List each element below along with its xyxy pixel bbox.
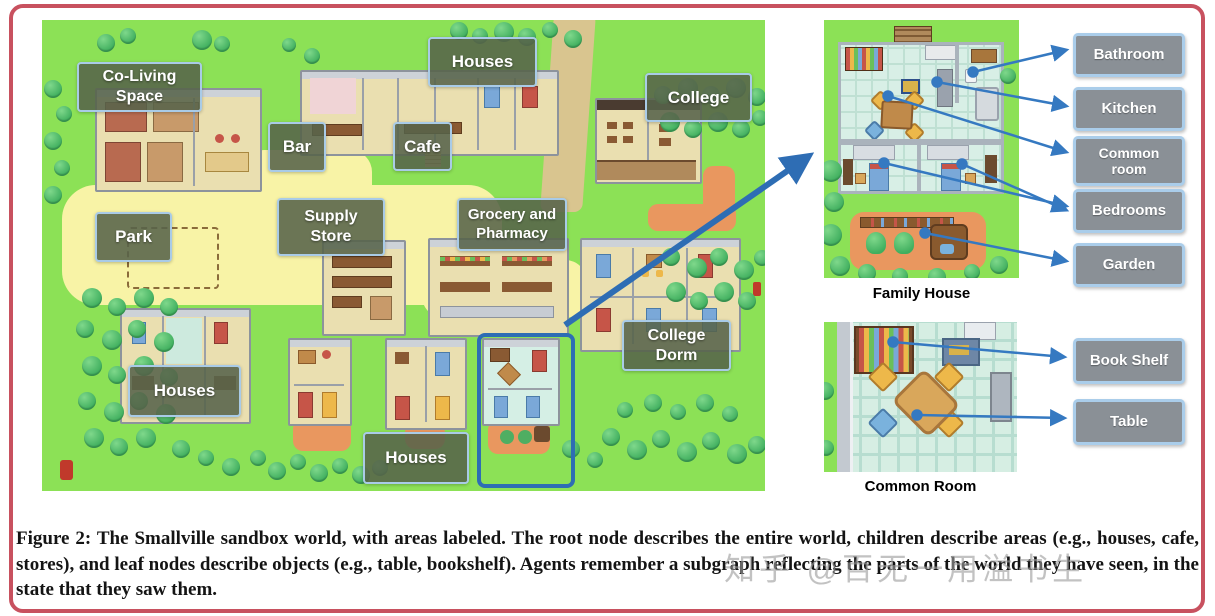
figure-2: Co-Living Space Houses Bar Cafe College …	[0, 0, 1215, 616]
tree-icon	[748, 436, 765, 454]
tree-icon	[892, 268, 908, 278]
family-house-highlight-box	[477, 333, 575, 488]
family-house-floorplan	[838, 42, 1004, 194]
building-house-bottom-middle-2	[385, 338, 467, 430]
tree-icon	[84, 428, 104, 448]
tree-icon	[192, 30, 212, 50]
tree-icon	[97, 34, 115, 52]
tree-icon	[44, 186, 62, 204]
smallville-map: Co-Living Space Houses Bar Cafe College …	[42, 20, 765, 491]
tree-icon	[702, 432, 720, 450]
cabinet	[990, 372, 1012, 422]
label-common-room: Common room	[1073, 136, 1185, 186]
map-label-houses-bottom-left: Houses	[128, 365, 241, 417]
tree-icon	[652, 430, 670, 448]
tree-icon	[687, 258, 707, 278]
tree-icon	[752, 110, 765, 126]
tree-icon	[56, 106, 72, 122]
tree-icon	[76, 320, 94, 338]
building-grocery-pharmacy	[428, 238, 569, 337]
tree-icon	[310, 464, 328, 482]
tree-icon	[722, 406, 738, 422]
tree-icon	[268, 462, 286, 480]
tree-icon	[602, 428, 620, 446]
map-label-bar: Bar	[268, 122, 326, 172]
map-label-supply-store: Supply Store	[277, 198, 385, 256]
map-label-college: College	[645, 73, 752, 122]
tree-icon	[172, 440, 190, 458]
tree-icon	[290, 454, 306, 470]
tree-icon	[564, 30, 582, 48]
common-room-caption: Common Room	[824, 478, 1017, 495]
tree-icon	[824, 224, 842, 246]
tree-icon	[82, 288, 102, 308]
tree-icon	[54, 160, 70, 176]
tree-icon	[108, 366, 126, 384]
tree-icon	[666, 282, 686, 302]
tree-icon	[670, 404, 686, 420]
common-room-inset	[824, 322, 1017, 472]
map-label-cafe: Cafe	[393, 122, 452, 171]
tree-icon	[160, 298, 178, 316]
family-house-inset	[824, 20, 1019, 278]
tree-icon	[102, 330, 122, 350]
map-label-park: Park	[95, 212, 172, 262]
tree-icon	[134, 288, 154, 308]
tree-icon	[120, 28, 136, 44]
tree-icon	[282, 38, 296, 52]
tree-icon	[830, 256, 850, 276]
watermark: 知乎 @百无一用溢书生	[724, 544, 1214, 589]
map-label-co-living-space: Co-Living Space	[77, 62, 202, 112]
tree-icon	[128, 320, 146, 338]
tree-icon	[662, 248, 680, 266]
tree-icon	[690, 292, 708, 310]
tree-icon	[677, 442, 697, 462]
map-label-college-dorm: College Dorm	[622, 320, 731, 371]
chair	[867, 407, 898, 438]
label-bathroom: Bathroom	[1073, 33, 1185, 77]
tree-icon	[104, 402, 124, 422]
tree-icon	[136, 428, 156, 448]
family-house-garden	[850, 212, 986, 270]
tree-icon	[684, 120, 702, 138]
tree-icon	[732, 120, 750, 138]
tree-icon	[587, 452, 603, 468]
tree-icon	[78, 392, 96, 410]
tree-icon	[198, 450, 214, 466]
tree-icon	[714, 282, 734, 302]
label-garden: Garden	[1073, 243, 1185, 287]
tree-icon	[824, 192, 844, 212]
map-label-grocery-pharmacy: Grocery and Pharmacy	[457, 198, 567, 251]
label-kitchen: Kitchen	[1073, 87, 1185, 131]
tree-icon	[738, 292, 756, 310]
tree-icon	[990, 256, 1008, 274]
red-scooter	[753, 282, 761, 296]
tree-icon	[222, 458, 240, 476]
family-house-caption: Family House	[824, 285, 1019, 302]
tree-icon	[696, 394, 714, 412]
flower-garden	[648, 204, 736, 231]
tree-icon	[734, 260, 754, 280]
label-book-shelf: Book Shelf	[1073, 338, 1185, 384]
tree-icon	[214, 36, 230, 52]
tree-icon	[754, 250, 765, 266]
label-bedrooms: Bedrooms	[1073, 189, 1185, 233]
tree-icon	[727, 444, 747, 464]
map-label-houses-top: Houses	[428, 37, 537, 87]
tree-icon	[108, 298, 126, 316]
tree-icon	[644, 394, 662, 412]
tree-icon	[82, 356, 102, 376]
tree-icon	[617, 402, 633, 418]
tree-icon	[542, 22, 558, 38]
tree-icon	[44, 132, 62, 150]
tree-icon	[858, 264, 876, 278]
tree-icon	[332, 458, 348, 474]
tree-icon	[304, 48, 320, 64]
wall-strip	[837, 322, 853, 472]
tree-icon	[1000, 68, 1016, 84]
building-house-bottom-middle-1	[288, 338, 352, 426]
map-label-houses-bottom-middle: Houses	[363, 432, 469, 484]
label-table: Table	[1073, 399, 1185, 445]
tree-icon	[154, 332, 174, 352]
tree-icon	[44, 80, 62, 98]
tree-icon	[964, 264, 980, 278]
tree-icon	[110, 438, 128, 456]
tree-icon	[710, 248, 728, 266]
red-truck	[60, 460, 73, 480]
tree-icon	[627, 440, 647, 460]
tree-icon	[250, 450, 266, 466]
